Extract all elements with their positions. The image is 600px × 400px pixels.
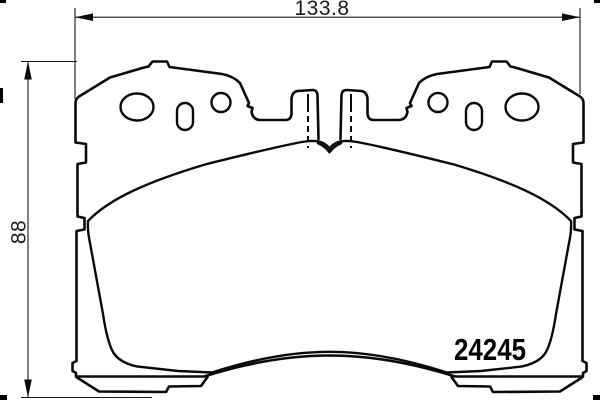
guide-hole-round [212,93,231,112]
arrow-down-icon [24,380,32,398]
scan-mark [0,0,6,3]
guide-hole-oval [121,94,154,121]
scan-mark [0,395,7,400]
scan-mark [594,0,600,3]
width-dimension-label: 133.8 [294,0,349,20]
drawing-canvas: 133.8 88 24245 [0,0,600,400]
arrow-up-icon [24,62,32,80]
backing-plate-outline [73,62,330,393]
scan-mark [593,395,600,400]
part-number-label: 24245 [454,332,526,367]
brake-pad-left [73,62,330,393]
arrow-left-icon [75,13,93,21]
arrow-right-icon [562,13,580,21]
dimension-width: 133.8 [75,0,580,99]
scan-mark [0,88,3,103]
height-dimension-label: 88 [8,220,31,244]
brake-pad-diagram: 133.8 88 24245 [0,0,600,400]
friction-material-outline [88,141,330,373]
guide-hole-slot [177,103,193,130]
